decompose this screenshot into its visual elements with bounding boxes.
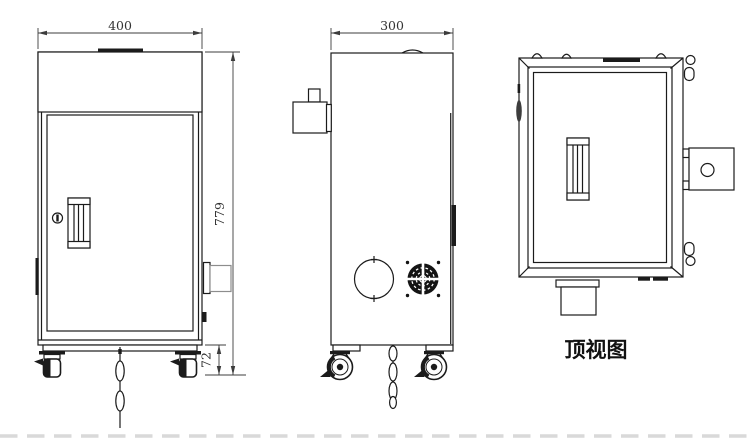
caster-side-left xyxy=(320,351,353,380)
cabinet-side-body xyxy=(331,50,456,351)
right-hinge-upper xyxy=(685,56,696,81)
door-hinge-side xyxy=(452,205,456,246)
top-view: 顶视图 xyxy=(516,54,734,362)
caster-front-left xyxy=(34,351,65,377)
door-handle-front xyxy=(68,198,90,248)
right-hinge-lower xyxy=(685,243,696,266)
top-vent-strip-top xyxy=(603,58,640,62)
bottom-edge-tab-2 xyxy=(653,278,668,281)
chain-front xyxy=(116,347,124,428)
motor-box-side xyxy=(293,89,331,133)
chain-side xyxy=(389,346,397,409)
front-caster-height-value: 72 xyxy=(199,352,214,368)
door-lock xyxy=(53,213,63,223)
door-handle-top xyxy=(567,138,589,200)
front-view: 400 xyxy=(34,18,246,428)
top-view-caption: 顶视图 xyxy=(565,338,628,362)
exhaust-duct-top xyxy=(556,280,599,315)
side-depth-value: 300 xyxy=(380,18,404,33)
top-edge-bumps xyxy=(532,54,666,58)
dim-caster-height: 72 xyxy=(199,345,227,375)
side-view: 300 xyxy=(293,18,456,409)
top-frame xyxy=(519,58,683,277)
side-attachment-top xyxy=(683,148,734,190)
header-panel xyxy=(38,52,202,112)
side-attachment-front xyxy=(204,263,232,294)
drawing-svg: 400 xyxy=(0,0,750,439)
bottom-edge-tab-1 xyxy=(638,278,650,281)
door-hinge-front xyxy=(36,258,39,295)
dim-height: 779 xyxy=(205,52,246,375)
caster-front-right xyxy=(170,351,201,377)
front-height-value: 779 xyxy=(212,202,227,226)
latch-front xyxy=(202,312,207,322)
dim-depth: 300 xyxy=(331,18,453,50)
blueprint-canvas: 400 xyxy=(0,0,750,439)
front-width-value: 400 xyxy=(108,18,132,33)
dim-width: 400 xyxy=(38,18,202,49)
caster-side-right xyxy=(414,351,447,380)
